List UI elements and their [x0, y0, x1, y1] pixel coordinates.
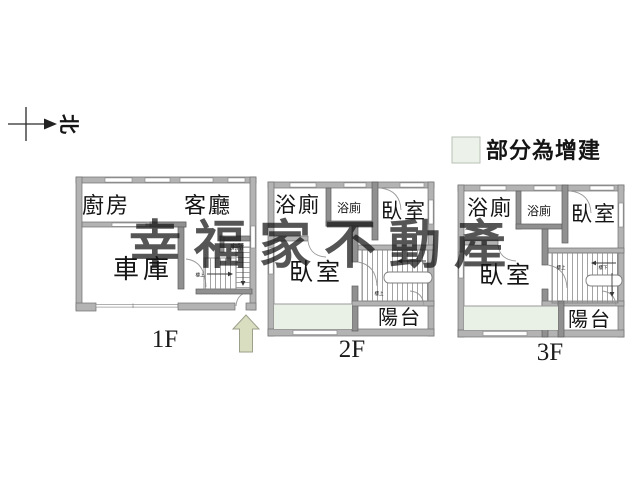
floor-label-1f: 1F [152, 326, 178, 353]
wall [542, 229, 548, 265]
floor-plan-page: 北 部分為增建 廁所 [0, 0, 640, 480]
room-label-balcony-3f: 陽台 [568, 308, 612, 331]
wall [558, 301, 564, 337]
window [344, 183, 366, 187]
window [534, 186, 556, 190]
addition-area-2f [274, 304, 352, 329]
room-label-balcony-2f: 陽台 [378, 306, 422, 329]
wall [246, 303, 256, 310]
stair-arrow-icon [610, 292, 615, 297]
stair-arrow-icon [241, 281, 246, 286]
floor-label-3f: 3F [537, 339, 563, 366]
wall [516, 224, 562, 229]
floor-plan-image: 北 部分為增建 廁所 [0, 0, 640, 480]
watermark-text: 幸福家不動產 [129, 217, 519, 275]
wall [352, 301, 434, 306]
wall [562, 185, 568, 243]
north-indicator: 北 [8, 107, 80, 141]
wall [76, 303, 96, 311]
wall [196, 289, 252, 294]
stairs-up-label-3f: 樓上 [557, 264, 566, 271]
wall [542, 301, 624, 306]
window [619, 203, 623, 227]
wall [548, 248, 624, 253]
garage-door [96, 305, 178, 308]
window [228, 178, 245, 182]
stair-handrail [586, 275, 622, 286]
room-label-bath-small-3f: 浴廁 [527, 203, 551, 218]
room-label-bath-3f: 浴廁 [467, 196, 513, 220]
window [483, 331, 527, 335]
addition-area-3f [464, 306, 558, 330]
stair-arrow-icon [591, 261, 596, 266]
window [400, 183, 424, 187]
room-label-kitchen: 廚房 [82, 193, 130, 218]
north-label: 北 [57, 114, 80, 134]
legend-label: 部分為增建 [486, 138, 601, 163]
legend-addition-swatch [452, 137, 480, 163]
entrance-arrow-icon [233, 315, 259, 352]
window [145, 178, 170, 182]
north-arrow-icon [44, 119, 57, 130]
room-label-living-room: 客廳 [184, 193, 232, 218]
floor-label-2f: 2F [339, 336, 365, 363]
room-label-bath-2f: 浴廁 [275, 193, 321, 217]
window [480, 186, 506, 190]
legend: 部分為增建 [452, 137, 601, 163]
room-label-bedroom-right-3f: 臥室 [571, 202, 617, 226]
window [180, 178, 213, 182]
stairs-up-label-2f: 樓上 [375, 290, 384, 297]
wall [178, 303, 235, 310]
window [293, 330, 337, 334]
stairs-down-label-3f: 樓下 [599, 264, 608, 271]
window [590, 186, 614, 190]
floorplan-3f: 樓上 樓下 浴廁 浴廁 臥室 臥室 陽台 3F [458, 185, 624, 366]
room-label-bath-small-2f: 浴廁 [337, 200, 361, 215]
wall [352, 286, 358, 331]
window [105, 178, 132, 182]
window [290, 183, 316, 187]
